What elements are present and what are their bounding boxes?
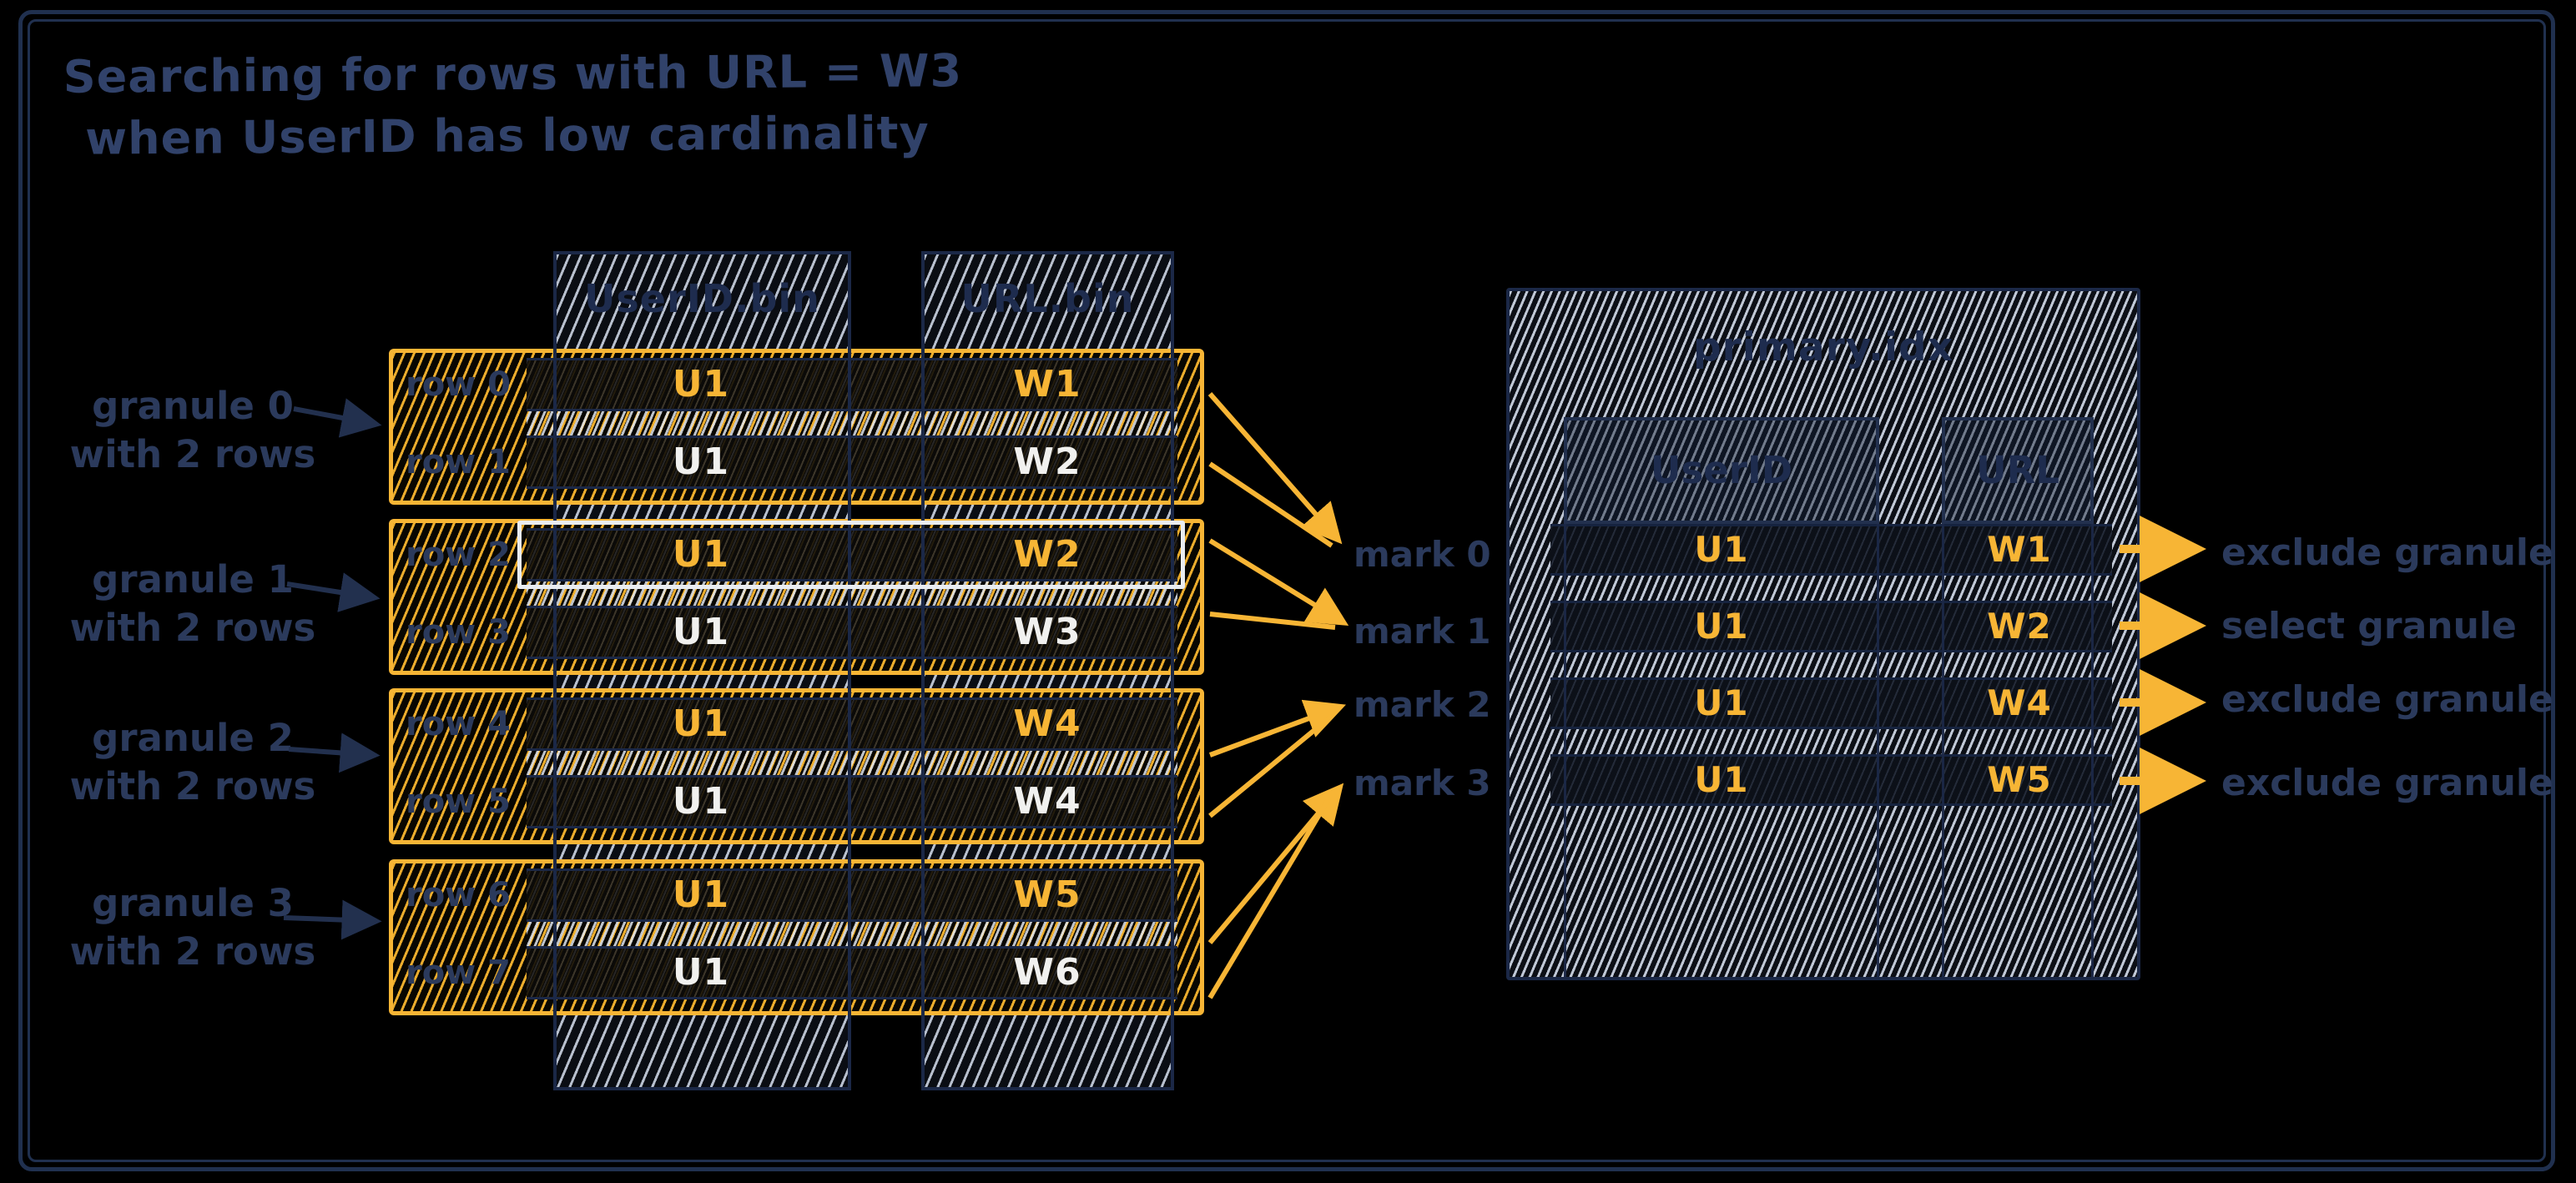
index-entry-3: U1 W5 xyxy=(1550,754,2112,806)
table-row-4: U1 W4 xyxy=(527,697,1177,751)
cell-userid: U1 xyxy=(647,608,755,657)
row-7-label: row 7 xyxy=(393,946,523,999)
cell-url: W1 xyxy=(991,360,1104,409)
table-row-5: U1 W4 xyxy=(527,775,1177,828)
row-3-label: row 3 xyxy=(393,606,523,659)
cell-userid: U1 xyxy=(647,949,755,997)
row-5-label: row 5 xyxy=(393,775,523,828)
row-4-label: row 4 xyxy=(393,697,523,751)
granule-0-label-line2: with 2 rows xyxy=(65,430,320,479)
title-line-2: when UserID has low cardinality xyxy=(85,102,963,169)
cell-userid: U1 xyxy=(1667,526,1776,573)
userid-column-right-edge xyxy=(848,251,851,1090)
row-6-label: row 6 xyxy=(393,868,523,922)
table-row-0: U1 W1 xyxy=(527,358,1177,411)
title-line-1: Searching for rows with URL = W3 xyxy=(63,40,962,108)
cell-url: W3 xyxy=(991,608,1104,657)
table-row-1: U1 W2 xyxy=(527,435,1177,489)
granule-1-label-line2: with 2 rows xyxy=(65,604,320,652)
granule-hatch-gap xyxy=(527,751,1177,775)
cell-userid: U1 xyxy=(1667,680,1776,727)
granule-box-2: row 4 row 5 U1 W4 U1 W4 xyxy=(389,688,1204,844)
row-0-label: row 0 xyxy=(393,358,523,411)
cell-userid: U1 xyxy=(1667,603,1776,650)
index-entry-0: U1 W1 xyxy=(1550,524,2112,576)
cell-userid: U1 xyxy=(647,778,755,826)
granule-2-label-line1: granule 2 xyxy=(65,714,320,763)
index-userid-col-left-line xyxy=(1564,524,1566,977)
cell-url: W4 xyxy=(991,778,1104,826)
primary-idx-title: primary.idx xyxy=(1510,325,2137,370)
url-column-left-edge xyxy=(921,251,925,1090)
granule-0-label: granule 0 with 2 rows xyxy=(65,382,320,479)
granule-2-label: granule 2 with 2 rows xyxy=(65,714,320,811)
decision-label-0: exclude granule xyxy=(2221,532,2572,574)
primary-idx-box: primary.idx UserID URL U1 W1 U1 W2 U1 W4… xyxy=(1506,288,2140,980)
mark-3-label: mark 3 xyxy=(1354,764,1512,803)
cell-userid: U1 xyxy=(647,871,755,919)
granule-box-0: row 0 row 1 U1 W1 U1 W2 xyxy=(389,349,1204,505)
row-2-label: row 2 xyxy=(393,528,523,581)
table-row-3: U1 W3 xyxy=(527,606,1177,659)
decision-label-2: exclude granule xyxy=(2221,679,2572,721)
granule-3-label-line1: granule 3 xyxy=(65,879,320,928)
cell-url: W2 xyxy=(991,438,1104,486)
decision-label-1: select granule xyxy=(2221,606,2572,647)
cell-userid: U1 xyxy=(647,438,755,486)
granule-2-label-line2: with 2 rows xyxy=(65,763,320,811)
cell-url: W2 xyxy=(1964,603,2075,650)
cell-url: W5 xyxy=(991,871,1104,919)
cell-url: W6 xyxy=(991,949,1104,997)
decision-label-3: exclude granule xyxy=(2221,763,2572,804)
granule-1-label-line1: granule 1 xyxy=(65,556,320,604)
table-row-7: U1 W6 xyxy=(527,946,1177,999)
userid-column-left-edge xyxy=(553,251,557,1090)
granule-box-3: row 6 row 7 U1 W5 U1 W6 xyxy=(389,859,1204,1015)
granule-hatch-gap xyxy=(527,411,1177,435)
index-entry-2: U1 W4 xyxy=(1550,677,2112,729)
granule-hatch-gap xyxy=(527,922,1177,946)
highlighted-row-outline xyxy=(517,521,1185,589)
cell-userid: U1 xyxy=(647,700,755,748)
row-1-label: row 1 xyxy=(393,435,523,489)
index-userid-col-right-line xyxy=(1877,524,1879,977)
mark-1-label: mark 1 xyxy=(1354,612,1512,651)
granule-1-label: granule 1 with 2 rows xyxy=(65,556,320,652)
mark-0-label: mark 0 xyxy=(1354,536,1512,574)
granule-3-label: granule 3 with 2 rows xyxy=(65,879,320,976)
url-bin-header: URL.bin xyxy=(925,276,1171,321)
primary-idx-userid-header: UserID xyxy=(1564,417,1879,524)
diagram-title: Searching for rows with URL = W3 when Us… xyxy=(63,40,962,170)
url-column-right-edge xyxy=(1171,251,1174,1090)
index-entry-1: U1 W2 xyxy=(1550,601,2112,652)
primary-idx-url-header: URL xyxy=(1942,417,2094,524)
cell-userid: U1 xyxy=(647,360,755,409)
mark-2-label: mark 2 xyxy=(1354,686,1512,724)
table-row-6: U1 W5 xyxy=(527,868,1177,922)
index-url-col-right-line xyxy=(2091,524,2094,977)
granule-0-label-line1: granule 0 xyxy=(65,382,320,430)
cell-url: W5 xyxy=(1964,757,2075,803)
granule-3-label-line2: with 2 rows xyxy=(65,928,320,976)
cell-url: W1 xyxy=(1964,526,2075,573)
index-url-col-left-line xyxy=(1942,524,1944,977)
cell-userid: U1 xyxy=(1667,757,1776,803)
cell-url: W4 xyxy=(1964,680,2075,727)
userid-bin-header: UserID.bin xyxy=(557,276,848,321)
cell-url: W4 xyxy=(991,700,1104,748)
